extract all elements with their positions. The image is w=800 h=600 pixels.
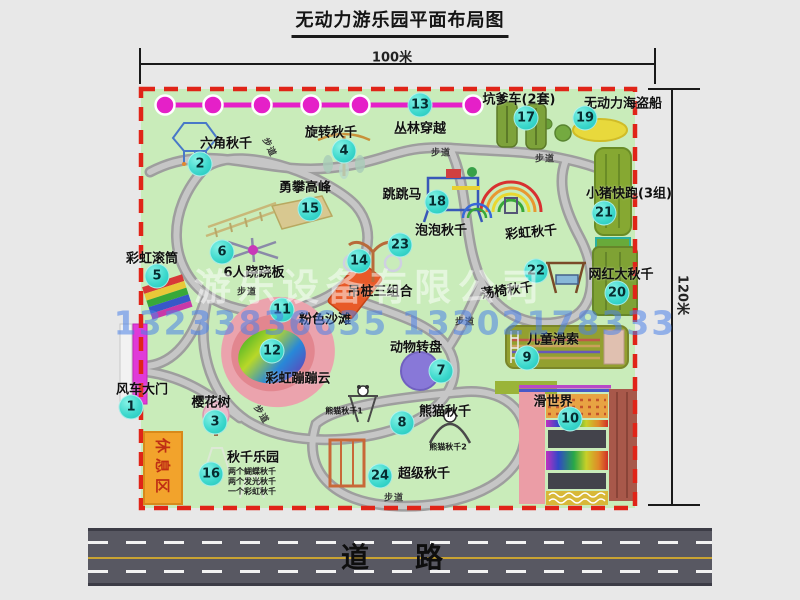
- attraction-label-16: 秋千乐园: [227, 447, 279, 466]
- attraction-badge-23: 23: [388, 233, 413, 258]
- park-layout-map: 无动力游乐园平面布局图 100米 120米 休息区 风车大门 六角秋千 樱花树 …: [0, 0, 800, 600]
- swing-note-3: 一个彩虹秋千: [228, 487, 276, 497]
- attraction-badge-18: 18: [425, 190, 450, 215]
- attraction-badge-3: 3: [203, 410, 228, 435]
- attraction-label-20: 网红大秋千: [588, 264, 653, 283]
- attraction-badge-17: 17: [514, 106, 539, 131]
- attraction-label-8: 熊猫秋千: [419, 401, 471, 420]
- width-dimension-label: 100米: [372, 47, 412, 66]
- page-title: 无动力游乐园平面布局图: [292, 6, 509, 38]
- attraction-badge-5: 5: [145, 264, 170, 289]
- attraction-label-1: 风车大门: [116, 379, 168, 398]
- attraction-badge-16: 16: [199, 462, 224, 487]
- swing-note-1: 两个蝴蝶秋千: [228, 467, 276, 477]
- attraction-badge-19: 19: [573, 106, 598, 131]
- attraction-label-3: 樱花树: [191, 392, 230, 411]
- panda-swing-1-note: 熊猫秋千1: [325, 406, 363, 417]
- attraction-label-13: 丛林穿越: [394, 118, 446, 137]
- attraction-label-12: 彩虹蹦蹦云: [265, 368, 330, 387]
- attraction-label-23: 泡泡秋千: [415, 220, 467, 239]
- attraction-badge-24: 24: [368, 464, 393, 489]
- footpath-label: 步道: [431, 146, 451, 159]
- attraction-label-17: 坑爹车(2套): [483, 89, 556, 108]
- rest-area-box: 休息区: [143, 431, 183, 505]
- footpath-label: 步道: [384, 491, 404, 504]
- attraction-label-15: 勇攀高峰: [279, 177, 331, 196]
- attraction-badge-10: 10: [558, 407, 583, 432]
- attraction-label-19: 无动力海盗船: [584, 93, 662, 112]
- height-dimension-label: 120米: [675, 275, 694, 315]
- swing-note-2: 两个发光秋千: [228, 477, 276, 487]
- attraction-badge-9: 9: [515, 346, 540, 371]
- attraction-badge-8: 8: [390, 411, 415, 436]
- watermark-phone: 13233836635 13302178333: [114, 304, 677, 343]
- swing-paradise-notes: 两个蝴蝶秋千 两个发光秋千 一个彩虹秋千: [228, 467, 276, 497]
- attraction-label-21: 小猪快跑(3组): [586, 183, 672, 202]
- attraction-badge-2: 2: [188, 152, 213, 177]
- attraction-label-24: 超级秋千: [398, 463, 450, 482]
- attraction-badge-4: 4: [332, 139, 357, 164]
- road-label: 道路: [341, 536, 489, 576]
- attraction-badge-20: 20: [605, 281, 630, 306]
- attraction-label-18: 跳跳马: [382, 184, 421, 203]
- attraction-badge-13: 13: [408, 93, 433, 118]
- attraction-label-4: 旋转秋千: [305, 122, 357, 141]
- attraction-label-2: 六角秋千: [200, 133, 252, 152]
- attraction-badge-7: 7: [429, 359, 454, 384]
- attraction-badge-1: 1: [119, 395, 144, 420]
- panda-swing-2-note: 熊猫秋千2: [429, 442, 467, 453]
- attraction-badge-15: 15: [298, 197, 323, 222]
- footpath-label: 步道: [535, 152, 555, 165]
- attraction-badge-21: 21: [592, 201, 617, 226]
